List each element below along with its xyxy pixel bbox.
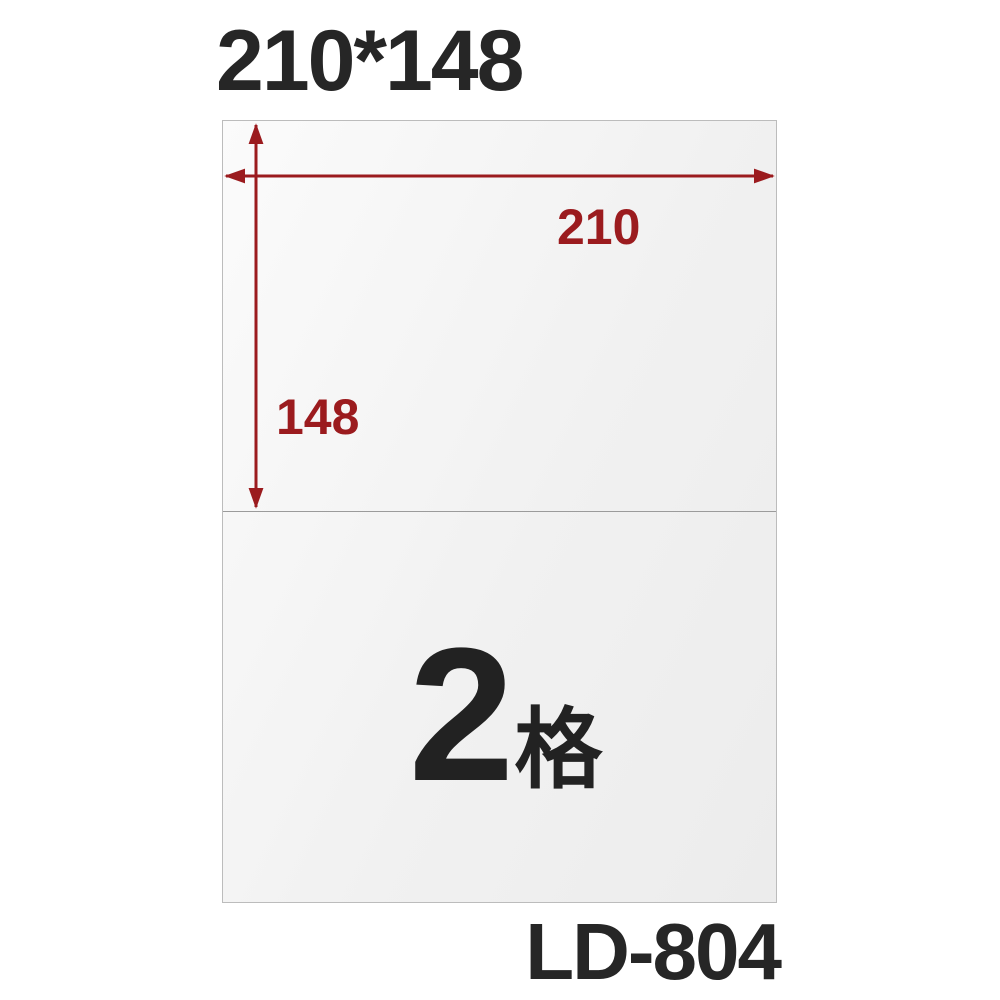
- cell-count-label: 2 格: [409, 620, 603, 810]
- product-model-label: LD-804: [380, 906, 780, 998]
- label-sheet: 2 格: [222, 120, 777, 903]
- cell-count-unit: 格: [514, 706, 602, 794]
- label-cell-top: [223, 121, 776, 512]
- label-cell-bottom: 2 格: [223, 512, 776, 903]
- height-dimension-label: 148: [276, 392, 359, 442]
- cell-count-number: 2: [409, 620, 511, 810]
- size-title: 210*148: [216, 12, 522, 111]
- product-spec-diagram: 210*148 2 格 210 148 LD-804: [0, 0, 1000, 1000]
- width-dimension-label: 210: [557, 202, 640, 252]
